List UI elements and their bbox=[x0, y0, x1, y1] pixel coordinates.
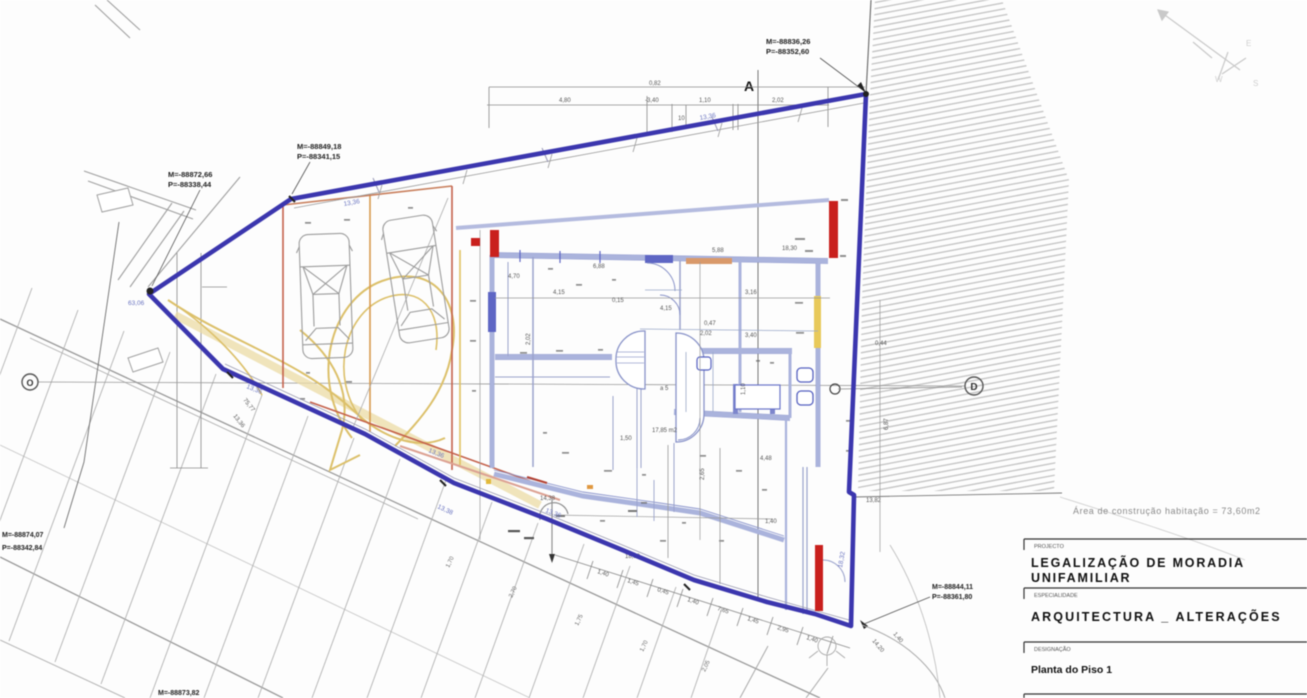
svg-text:3,40: 3,40 bbox=[745, 333, 757, 339]
svg-text:5,88: 5,88 bbox=[712, 248, 724, 254]
svg-text:2,02: 2,02 bbox=[700, 331, 712, 337]
svg-text:Área de construção habitação: Área de construção habitação = 73,60m2 bbox=[1073, 506, 1261, 516]
svg-text:S: S bbox=[1253, 79, 1258, 88]
svg-text:0,47: 0,47 bbox=[704, 321, 716, 327]
svg-text:M=-88872,66: M=-88872,66 bbox=[168, 170, 212, 179]
svg-text:0,44: 0,44 bbox=[875, 341, 887, 347]
svg-text:D: D bbox=[970, 382, 977, 393]
svg-text:1,50: 1,50 bbox=[620, 436, 632, 442]
svg-text:O: O bbox=[26, 378, 33, 388]
svg-text:0,82: 0,82 bbox=[649, 81, 661, 87]
svg-text:LEGALIZAÇÃO DE MORADIA: LEGALIZAÇÃO DE MORADIA bbox=[1031, 555, 1245, 570]
svg-text:1,10: 1,10 bbox=[699, 98, 711, 104]
svg-text:4,70: 4,70 bbox=[508, 274, 520, 280]
svg-text:0,15: 0,15 bbox=[612, 298, 624, 304]
svg-text:2,02: 2,02 bbox=[772, 98, 784, 104]
svg-text:M=-88873,82: M=-88873,82 bbox=[158, 690, 200, 697]
svg-text:1,10: 1,10 bbox=[741, 383, 747, 395]
svg-text:2,02: 2,02 bbox=[526, 333, 532, 345]
svg-text:W: W bbox=[1215, 75, 1223, 84]
svg-text:4,15: 4,15 bbox=[553, 290, 565, 296]
svg-text:PROJECTO: PROJECTO bbox=[1034, 544, 1065, 550]
svg-text:2,65: 2,65 bbox=[700, 468, 706, 480]
svg-text:6,88: 6,88 bbox=[593, 264, 605, 270]
svg-text:UNIFAMILIAR: UNIFAMILIAR bbox=[1031, 571, 1131, 585]
svg-text:17,85 m2: 17,85 m2 bbox=[652, 428, 678, 434]
svg-text:14,38: 14,38 bbox=[540, 496, 556, 502]
svg-text:P=-88338,44: P=-88338,44 bbox=[168, 180, 212, 189]
svg-text:ARQUITECTURA _ ALTERAÇÕES: ARQUITECTURA _ ALTERAÇÕES bbox=[1031, 609, 1282, 624]
svg-text:M=-88844,11: M=-88844,11 bbox=[932, 584, 973, 591]
svg-text:4,48: 4,48 bbox=[760, 456, 772, 462]
svg-text:63,06: 63,06 bbox=[128, 300, 145, 307]
svg-text:M=-88849,18: M=-88849,18 bbox=[297, 142, 341, 151]
svg-text:DESIGNAÇÃO: DESIGNAÇÃO bbox=[1034, 646, 1071, 653]
svg-text:A: A bbox=[744, 78, 754, 94]
svg-text:13,82: 13,82 bbox=[866, 498, 882, 504]
svg-text:P=-88342,84: P=-88342,84 bbox=[2, 545, 42, 552]
svg-text:P=-88352,60: P=-88352,60 bbox=[766, 47, 809, 56]
svg-text:1,40: 1,40 bbox=[765, 519, 777, 525]
svg-text:4,15: 4,15 bbox=[660, 306, 672, 312]
svg-text:18,30: 18,30 bbox=[782, 246, 798, 252]
svg-text:P=-88341,15: P=-88341,15 bbox=[297, 152, 340, 161]
svg-text:6,87: 6,87 bbox=[884, 418, 890, 430]
svg-text:P=-88361,80: P=-88361,80 bbox=[932, 594, 972, 601]
svg-text:E: E bbox=[1246, 39, 1251, 48]
svg-text:M=-88874,07: M=-88874,07 bbox=[2, 532, 44, 539]
svg-text:Planta do Piso 1: Planta do Piso 1 bbox=[1031, 664, 1112, 676]
svg-text:M=-88836,26: M=-88836,26 bbox=[766, 37, 810, 46]
svg-text:10: 10 bbox=[678, 116, 685, 122]
svg-text:4,80: 4,80 bbox=[559, 98, 571, 104]
svg-text:ESPECIALIDADE: ESPECIALIDADE bbox=[1034, 593, 1078, 599]
svg-text:-3,40: -3,40 bbox=[645, 98, 659, 104]
svg-text:3,16: 3,16 bbox=[745, 290, 757, 296]
svg-text:a 5: a 5 bbox=[660, 386, 669, 392]
